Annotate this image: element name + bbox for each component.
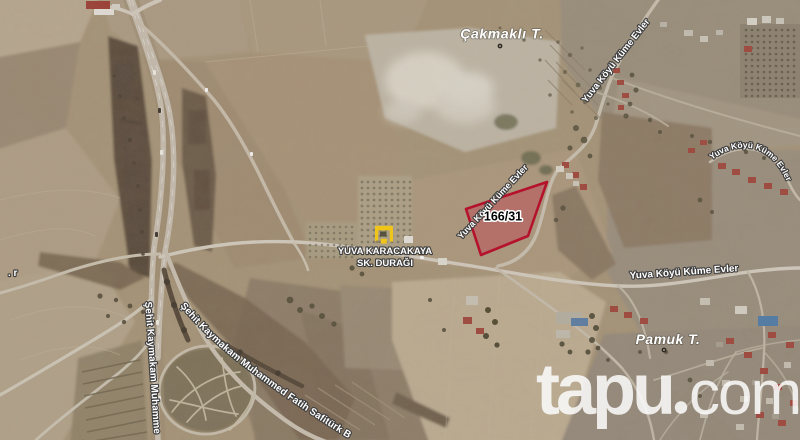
- svg-text:YUVA KARACAKAYA: YUVA KARACAKAYA: [338, 246, 432, 257]
- svg-text:166/31: 166/31: [484, 210, 522, 224]
- svg-text:tapu: tapu: [536, 350, 672, 430]
- svg-text:com: com: [689, 359, 800, 428]
- svg-text:SK. DURAĞI: SK. DURAĞI: [357, 257, 413, 269]
- svg-text:Çakmaklı T.: Çakmaklı T.: [460, 26, 543, 42]
- svg-text:Pamuk T.: Pamuk T.: [636, 331, 701, 347]
- svg-text:. r: . r: [8, 268, 18, 279]
